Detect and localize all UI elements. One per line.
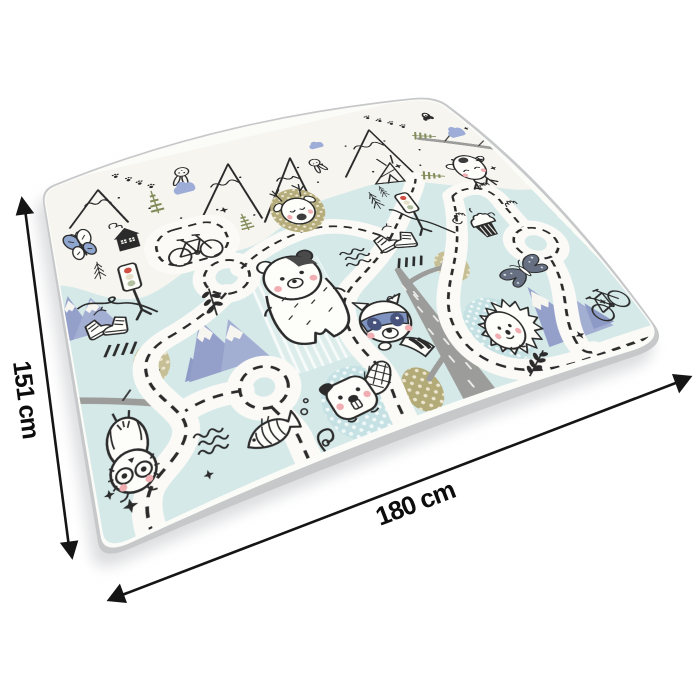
svg-text:151 cm: 151 cm: [7, 359, 45, 440]
